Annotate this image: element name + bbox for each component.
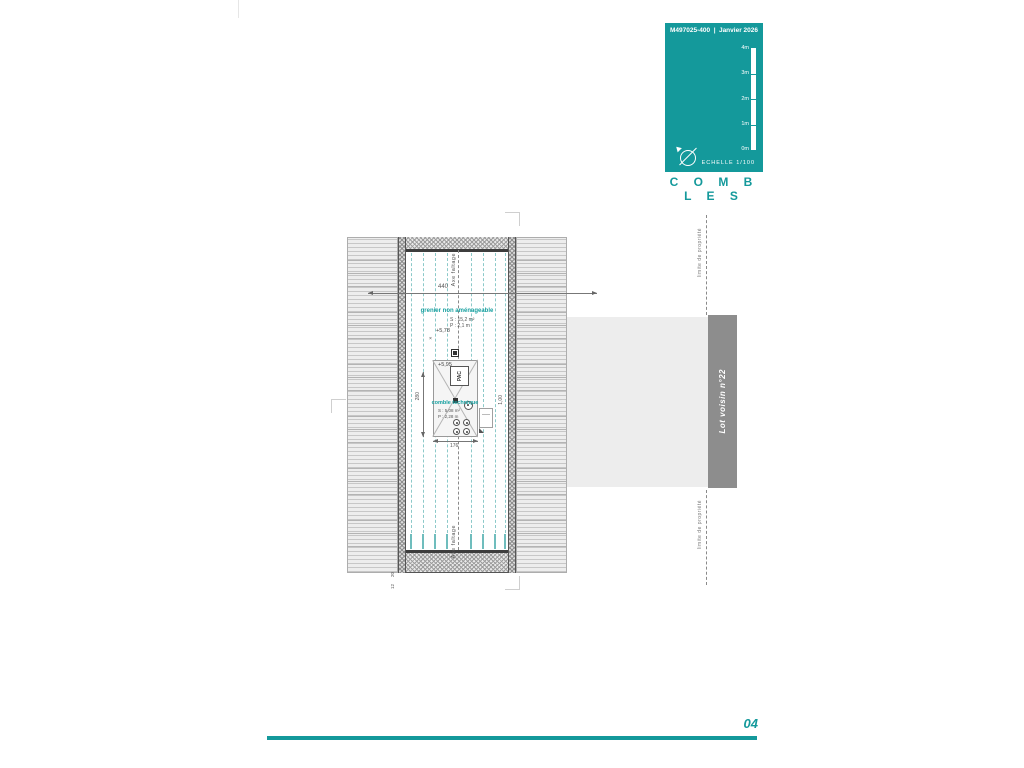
equipment-icon: [463, 419, 470, 426]
joist-end-mark: [410, 534, 412, 549]
room-name-technique: comble technique: [430, 400, 480, 406]
top-wall-insulation: [406, 237, 508, 249]
property-boundary-label: limite de propriété: [697, 500, 703, 549]
top-wall-line: [406, 249, 508, 252]
heat-pump-unit: PAC: [450, 366, 469, 386]
corner-mark: [331, 399, 346, 413]
joist-end-mark: [422, 534, 424, 549]
equipment-icon: [463, 428, 470, 435]
room-height-grenier: P : 2,1 m: [450, 323, 470, 329]
dimension-arrow: [421, 372, 425, 377]
scale-bar: [751, 48, 756, 150]
sheet-title: C O M B L E S: [665, 175, 763, 203]
doc-date: Janvier 2026: [719, 27, 758, 34]
scale-tick-label: 4m: [729, 45, 749, 51]
ridge-axis-label: Axe faîtage: [451, 525, 457, 558]
corner-mark: [505, 576, 520, 590]
dimension-value: 176: [450, 443, 458, 449]
north-arrow-icon: [677, 147, 697, 167]
dimension-line-tech-w: [433, 441, 478, 442]
joist-end-mark: [434, 534, 436, 549]
dimension-value: 1,00: [498, 395, 504, 405]
scale-tick-label: 0m: [729, 146, 749, 152]
room-name-grenier: grenier non aménageable: [406, 308, 508, 314]
scale-tick: [751, 99, 756, 100]
ridge-axis-label: Axe faîtage: [451, 253, 457, 286]
bottom-wall-insulation: [406, 553, 508, 564]
title-block-header: M497025-400 | Janvier 2026: [670, 27, 758, 34]
doc-reference: M497025-400 |: [670, 27, 716, 34]
equipment-icon: [453, 419, 460, 426]
page-fold-mark: [238, 0, 239, 18]
wall-dimension: 20: [390, 572, 395, 577]
dimension-arrow: [592, 291, 597, 295]
joist-line: [505, 253, 506, 533]
drawing-page: M497025-400 | Janvier 2026 4m 3m 2m 1m 0…: [0, 0, 1024, 768]
neighbor-lot-label: Lot voisin n°22: [718, 369, 727, 433]
dimension-value: 440: [438, 284, 448, 290]
dimension-arrow: [433, 439, 438, 443]
heat-pump-label: PAC: [457, 371, 463, 381]
joist-line: [411, 253, 412, 533]
access-hatch: [479, 408, 493, 428]
gable-wall-right: [508, 237, 516, 573]
survey-cross: ×: [429, 336, 432, 342]
joist-end-mark: [446, 534, 448, 549]
joist-end-mark: [482, 534, 484, 549]
property-boundary-label: limite de propriété: [697, 228, 703, 277]
dimension-arrow: [421, 432, 425, 437]
dimension-line-width: [368, 293, 597, 294]
roof-hatch-left: [347, 237, 398, 573]
footer-accent-bar: [267, 736, 757, 740]
dimension-value: 280: [415, 392, 421, 400]
scale-tick: [751, 125, 756, 126]
scale-tick-label: 2m: [729, 96, 749, 102]
property-boundary-line: [706, 215, 707, 315]
equipment-icon: [453, 428, 460, 435]
dimension-arrow: [473, 439, 478, 443]
bottom-wall-band: [406, 564, 508, 573]
joist-end-mark: [470, 534, 472, 549]
title-block: M497025-400 | Janvier 2026 4m 3m 2m 1m 0…: [665, 23, 763, 172]
neighbor-lot-bar: Lot voisin n°22: [708, 315, 737, 488]
scale-text: ECHELLE 1/100: [702, 160, 755, 166]
gable-wall-left: [398, 237, 406, 573]
page-number: 04: [730, 716, 758, 731]
neighbor-building-mass: [567, 317, 708, 487]
joist-end-mark: [504, 534, 506, 549]
scale-tick-label: 3m: [729, 70, 749, 76]
property-boundary-line: [706, 490, 707, 585]
joist-line: [483, 253, 484, 533]
wall-dimension: 12: [390, 584, 395, 589]
access-arrow: [479, 428, 484, 433]
roof-hatch-right: [516, 237, 567, 573]
scale-tick-label: 1m: [729, 121, 749, 127]
dimension-line-tech-h: [423, 372, 424, 437]
joist-end-mark: [494, 534, 496, 549]
corner-mark: [505, 212, 520, 226]
chimney-flue: [451, 349, 459, 357]
joist-line: [495, 253, 496, 533]
scale-tick: [751, 74, 756, 75]
dimension-arrow: [368, 291, 373, 295]
level-mark: +5,78: [436, 328, 450, 334]
